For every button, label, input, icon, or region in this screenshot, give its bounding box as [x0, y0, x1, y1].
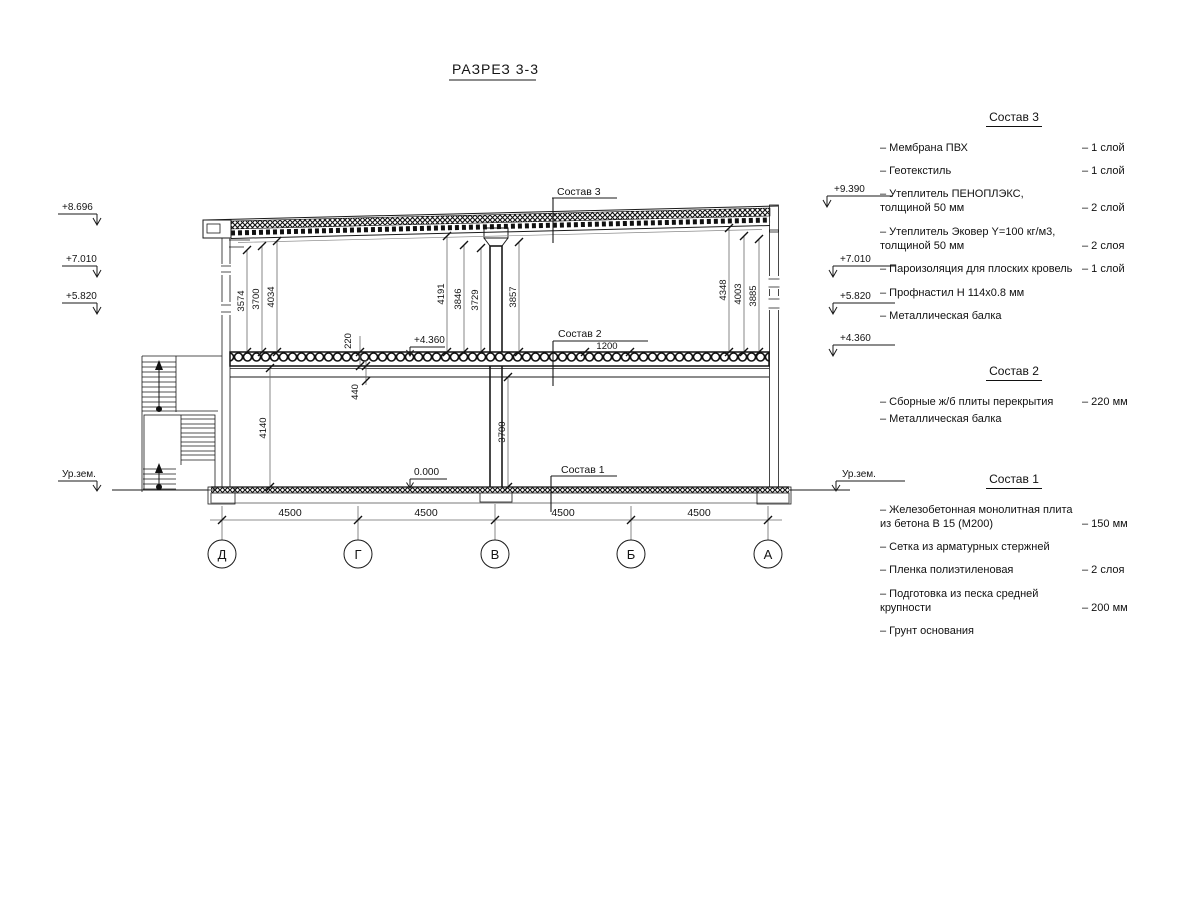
axis-label: А [764, 547, 773, 562]
legend-item: – Мембрана ПВХ– 1 слой [880, 141, 1148, 155]
dimension-label: 440 [350, 384, 361, 400]
legend-item: – Утеплитель ПЕНОПЛЭКС, толщиной 50 мм– … [880, 187, 1148, 216]
legend-item: – Пленка полиэтиленовая– 2 слоя [880, 563, 1148, 577]
dimension-label: 4003 [733, 283, 744, 304]
drawing-title: РАЗРЕЗ 3-3 [452, 61, 539, 77]
legend-item: – Подготовка из песка средней крупности–… [880, 587, 1148, 616]
ground-slab [112, 487, 850, 504]
elevation-mark-label: +5.820 [840, 291, 871, 302]
elevation-marks-left: +8.696 +7.010 +5.820 Ур.зем. [58, 202, 101, 491]
ground-level-label: Ур.зем. [842, 469, 876, 480]
legend-item: – Профнастил Н 114х0.8 мм [880, 286, 1148, 300]
stair-direction-arrow-upper [155, 360, 163, 412]
leader-label-sostav3: Состав 3 [557, 186, 601, 198]
legend-item: – Утеплитель Эковер Y=100 кг/м3, толщино… [880, 225, 1148, 254]
elevation-mark-label: +5.820 [66, 291, 97, 302]
staircase [142, 356, 222, 492]
drawing-sheet: { "title": "РАЗРЕЗ 3-3", "section": { "m… [0, 0, 1200, 900]
legend-item: – Грунт основания [880, 624, 1148, 638]
bottom-dimensions: 4500 4500 4500 4500 [210, 504, 782, 540]
leader-label-sostav1: Состав 1 [561, 464, 605, 476]
axis-label: Б [627, 547, 636, 562]
axis-markers: Д Г В Б А [208, 540, 782, 568]
dimensions-floor2-right: 4348 4003 3885 [718, 224, 763, 356]
second-floor-slab [230, 352, 769, 377]
dimension-label: 3885 [748, 285, 759, 306]
dimension-label: 220 [343, 333, 354, 349]
legend-title: Состав 3 [880, 110, 1148, 126]
stair-treads-mid [181, 419, 215, 460]
elevation-mark-arrow-icon [58, 481, 101, 491]
elevation-mark-label: +4.360 [840, 333, 871, 344]
roof [203, 205, 779, 247]
dimension-label: 4140 [258, 417, 269, 438]
elevation-mark-label: 0.000 [414, 467, 439, 478]
elevation-mark-label: +8.696 [62, 202, 93, 213]
stair-direction-arrow-lower [155, 463, 163, 490]
legend-sostav-2: Состав 2 – Сборные ж/б плиты перекрытия–… [880, 364, 1148, 429]
legend-sostav-1: Состав 1 – Железобетонная монолитная пли… [880, 472, 1148, 648]
axis-label: Г [354, 547, 361, 562]
axis-label: В [491, 547, 500, 562]
dimensions-floor2-middle: 4191 3846 3729 3857 [436, 232, 523, 356]
legend-item: – Пароизоляция для плоских кровель– 1 сл… [880, 262, 1148, 276]
elevation-mark-label: +7.010 [840, 254, 871, 265]
legend-sostav-3: Состав 3 – Мембрана ПВХ– 1 слой – Геотек… [880, 110, 1148, 332]
dimension-label: 3574 [236, 290, 247, 311]
dimension-label: 3700 [251, 288, 262, 309]
legend-item: – Металлическая балка [880, 412, 1148, 426]
leader-label-sostav2: Состав 2 [558, 328, 602, 340]
legend-title: Состав 1 [880, 472, 1148, 488]
axis-label: Д [218, 547, 227, 562]
legend-item: – Геотекстиль– 1 слой [880, 164, 1148, 178]
elevation-mark-label: +9.390 [834, 184, 865, 195]
dimension-label: 3729 [470, 289, 481, 310]
legend-item: – Сетка из арматурных стержней [880, 540, 1148, 554]
beam-seat [229, 240, 250, 247]
legend-item: – Сборные ж/б плиты перекрытия– 220 мм [880, 395, 1148, 409]
ground-level-label: Ур.зем. [62, 469, 96, 480]
right-wall [769, 230, 780, 488]
parapet [770, 205, 779, 232]
dimension-label: 4500 [278, 507, 302, 519]
elevation-mark-arrow-icon [62, 303, 101, 314]
elevation-mark-arrow-icon [58, 214, 101, 225]
elevation-mark-arrow-icon [829, 345, 895, 356]
dimension-label: 3846 [453, 288, 464, 309]
elevation-mark-arrow-icon [62, 266, 101, 277]
dimension-label: 4500 [687, 507, 711, 519]
dimensions-floor2-left: 3574 3700 4034 [236, 237, 281, 356]
dimension-label: 1200 [596, 341, 617, 352]
legend-item: – Железобетонная монолитная плита из бет… [880, 503, 1148, 532]
elevation-mark-label: +4.360 [414, 335, 445, 346]
dimension-label: 4191 [436, 283, 447, 304]
dimension-label: 3700 [497, 421, 508, 442]
dimension-label: 3857 [508, 286, 519, 307]
legend-item: – Металлическая балка [880, 309, 1148, 323]
elevation-mark-label: +7.010 [66, 254, 97, 265]
legend-title: Состав 2 [880, 364, 1148, 380]
dimension-label: 4348 [718, 279, 729, 300]
dimension-label: 4034 [266, 286, 277, 307]
dimension-label: 4500 [414, 507, 438, 519]
dimension-label: 4500 [551, 507, 575, 519]
